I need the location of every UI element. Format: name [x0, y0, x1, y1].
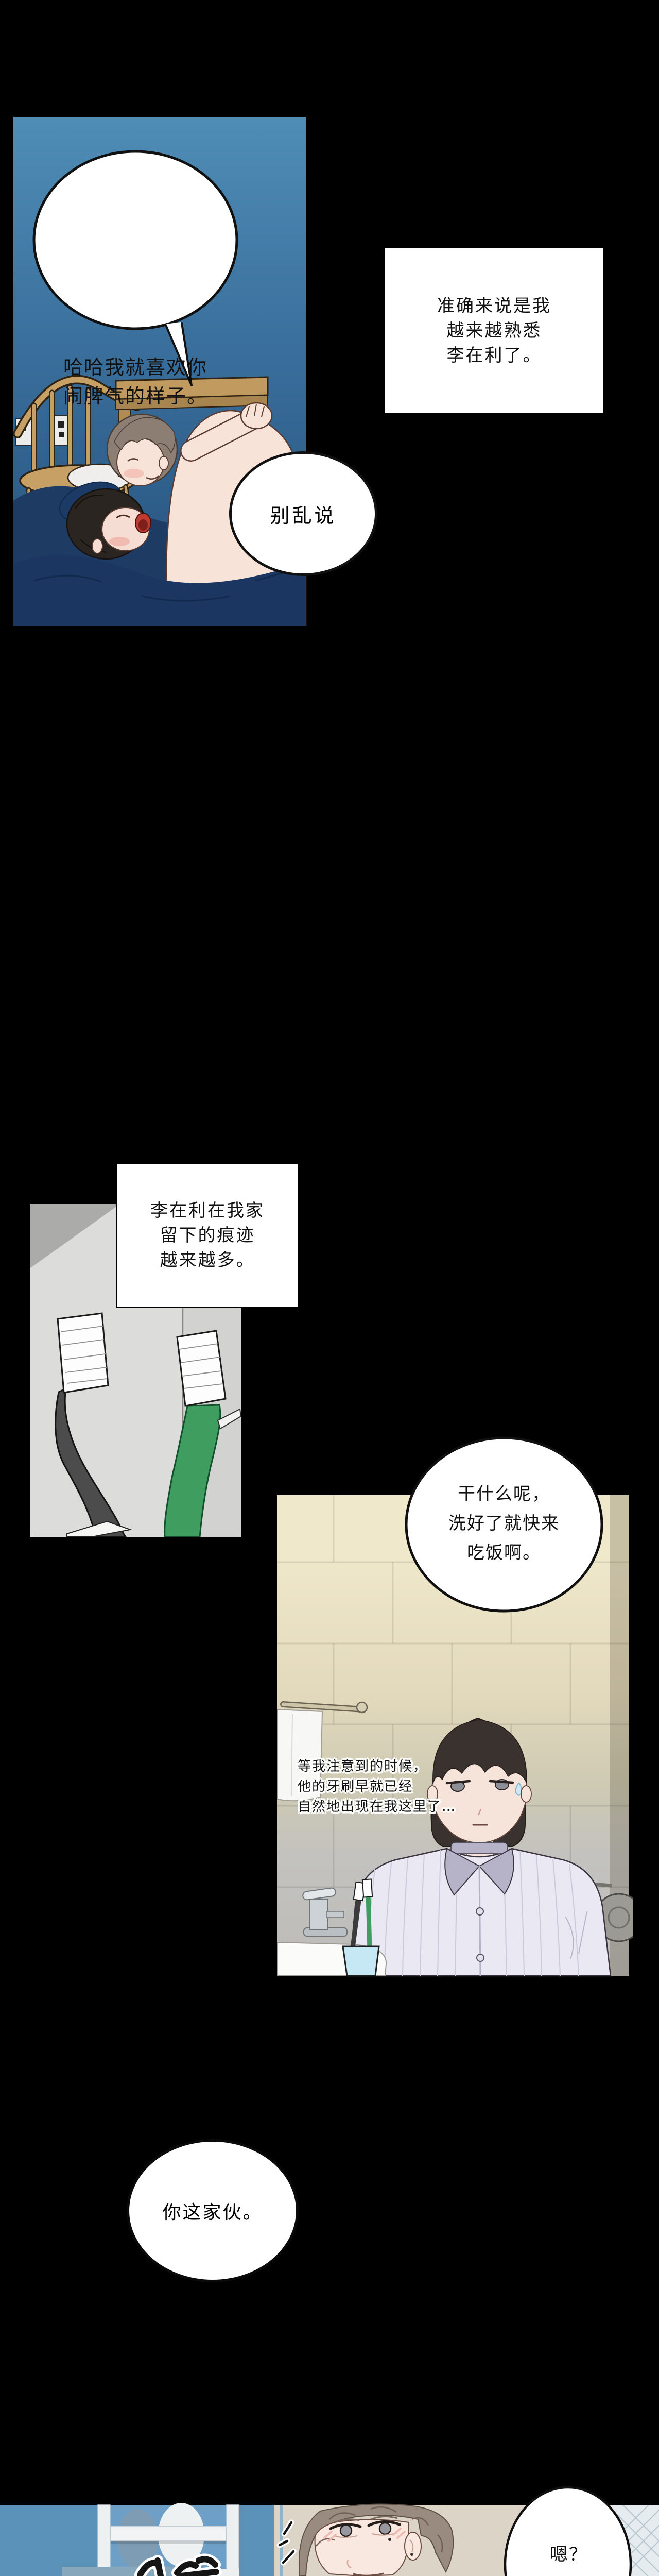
speech-bubble-1-text: 哈哈我就喜欢你 闹脾气的样子。	[48, 353, 223, 411]
speech-bubble-4-text: 你这家伙。	[162, 2197, 263, 2224]
button	[476, 1908, 483, 1915]
cup-toothbrush-green	[368, 1893, 370, 1950]
faucet-body	[310, 1899, 327, 1930]
button	[477, 1954, 484, 1961]
face	[315, 2519, 409, 2576]
toothbrush-cup	[343, 1946, 379, 1976]
earring	[410, 2553, 413, 2556]
beauty-mark	[388, 2538, 391, 2541]
speech-bubble-2-text: 别乱说	[270, 500, 336, 528]
speech-bubble-2: 别乱说	[229, 451, 377, 576]
webtoon-page: 哈哈我就喜欢你 闹脾气的样子。 准确来说是我 越来越熟悉 李在利了。 别乱说	[0, 0, 659, 2576]
speech-bubble-4: 你这家伙。	[127, 2139, 299, 2282]
faucet-spout	[326, 1911, 344, 1918]
speech-bubble-5-text: 嗯？	[530, 2540, 608, 2566]
caption-box-2: 李在利在我家 留下的痕迹 越来越多。	[116, 1163, 299, 1308]
narration-text: 等我注意到的时候， 他的牙刷早就已经 自然地出现在我这里了…	[298, 1757, 456, 1817]
caption-box-1: 准确来说是我 越来越熟悉 李在利了。	[384, 247, 605, 414]
glass-shelf	[110, 2527, 227, 2541]
right-eye-lid	[490, 1781, 513, 1783]
speech-bubble-3-text: 干什么呢， 洗好了就快来 吃饭啊。	[407, 1480, 601, 1568]
